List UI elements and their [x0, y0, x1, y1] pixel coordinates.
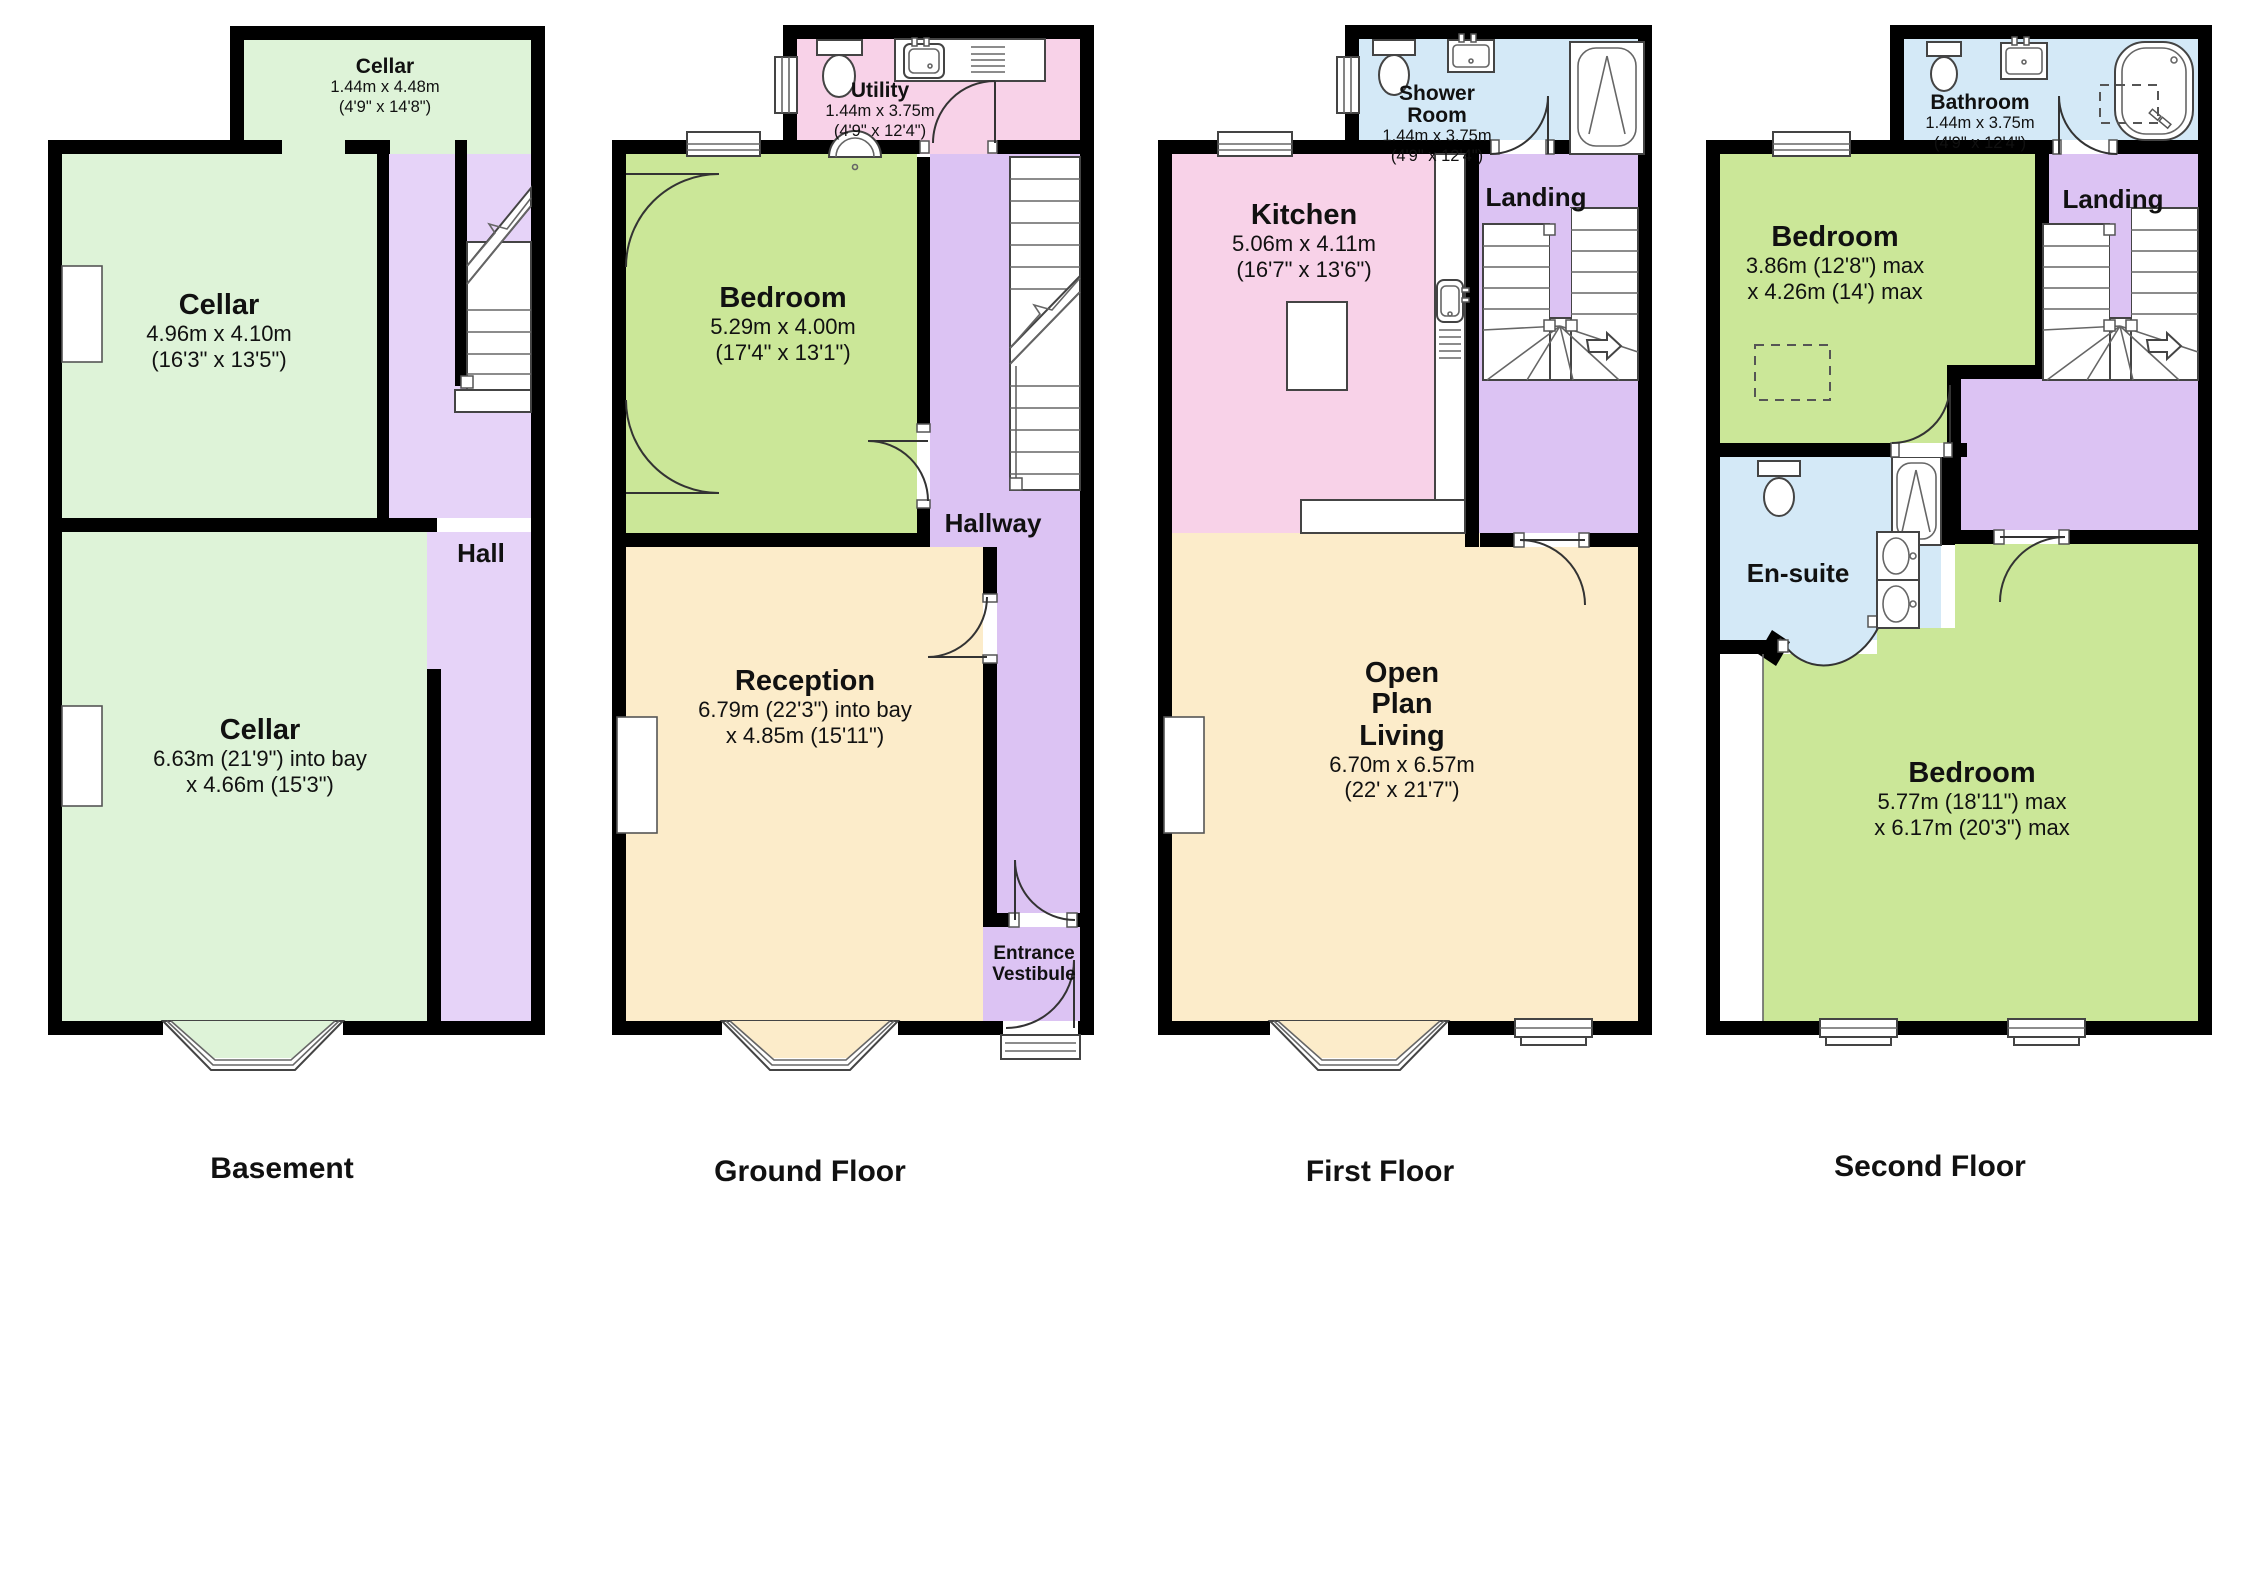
floor-first: Shower Room 1.44m x 3.75m (4'9" x 12'4")… [1158, 14, 1652, 1089]
floor-label-second: Second Floor [1834, 1150, 2026, 1184]
room-label-cellar-top: Cellar 1.44m x 4.48m (4'9" x 14'8") [330, 56, 439, 117]
room-label-bathroom: Bathroom 1.44m x 3.75m (4'9" x 12'4") [1925, 92, 2034, 153]
room-label-hallway: Hallway [945, 510, 1042, 537]
staircase [1010, 157, 1080, 490]
room-label-landing-2: Landing [2062, 186, 2163, 213]
void [1720, 654, 1763, 1021]
room-label-utility: Utility 1.44m x 3.75m (4'9" x 12'4") [825, 80, 934, 141]
entrance-porch [1001, 1035, 1080, 1059]
room-reception [626, 547, 983, 1021]
door-jamb [1778, 640, 1788, 652]
counter [1301, 500, 1465, 533]
room-bedroom-2c [1877, 628, 1955, 654]
kitchen-island [1287, 302, 1347, 390]
room-landing-2b [1961, 379, 2198, 530]
bay-window [163, 1021, 343, 1070]
room-label-landing: Landing [1485, 184, 1586, 211]
room-label-vestibule: Entrance Vestibule [984, 943, 1084, 986]
basin-icon [1448, 34, 1494, 72]
sink-icon [1877, 532, 1919, 628]
shower-icon [1570, 42, 1644, 154]
floor-ground: Utility 1.44m x 3.75m (4'9" x 12'4") Bed… [612, 14, 1098, 1089]
room-label-bedroom-2: Bedroom 5.77m (18'11") max x 6.17m (20'3… [1874, 758, 2069, 840]
room-label-ensuite: En-suite [1747, 560, 1850, 587]
room-label-kitchen: Kitchen 5.06m x 4.11m (16'7" x 13'6") [1232, 200, 1376, 282]
recess [62, 706, 102, 806]
staircase [1483, 208, 1638, 380]
room-label-shower: Shower Room 1.44m x 3.75m (4'9" x 12'4") [1382, 83, 1491, 166]
floor-label-ground: Ground Floor [714, 1155, 906, 1189]
floorplan-canvas: Cellar 1.44m x 4.48m (4'9" x 14'8") Cell… [0, 0, 2256, 1596]
room-label-bedroom: Bedroom 5.29m x 4.00m (17'4" x 13'1") [710, 283, 856, 365]
floor-label-basement: Basement [210, 1152, 353, 1186]
room-label-reception: Reception 6.79m (22'3") into bay x 4.85m… [698, 666, 912, 748]
bay-window [722, 1021, 898, 1070]
bay-window [1270, 1021, 1448, 1070]
room-label-cellar-left: Cellar 4.96m x 4.10m (16'3" x 13'5") [146, 290, 292, 372]
room-label-cellar-bottom: Cellar 6.63m (21'9") into bay x 4.66m (1… [153, 715, 367, 797]
staircase [2043, 208, 2198, 380]
recess [617, 717, 657, 833]
room-label-bedroom-1: Bedroom 3.86m (12'8") max x 4.26m (14') … [1746, 222, 1924, 304]
room-hall-lower [427, 532, 531, 1021]
basin-icon [2001, 37, 2047, 79]
recess [62, 266, 102, 362]
room-label-living: Open Plan Living 6.70m x 6.57m (22' x 21… [1329, 658, 1475, 803]
floor-second: Bathroom 1.44m x 3.75m (4'9" x 12'4") Be… [1706, 14, 2212, 1089]
floor-basement: Cellar 1.44m x 4.48m (4'9" x 14'8") Cell… [48, 14, 548, 1089]
room-label-hall: Hall [457, 540, 505, 567]
recess [1164, 717, 1204, 833]
bath-icon [2115, 42, 2193, 140]
floor-label-first: First Floor [1306, 1155, 1454, 1189]
